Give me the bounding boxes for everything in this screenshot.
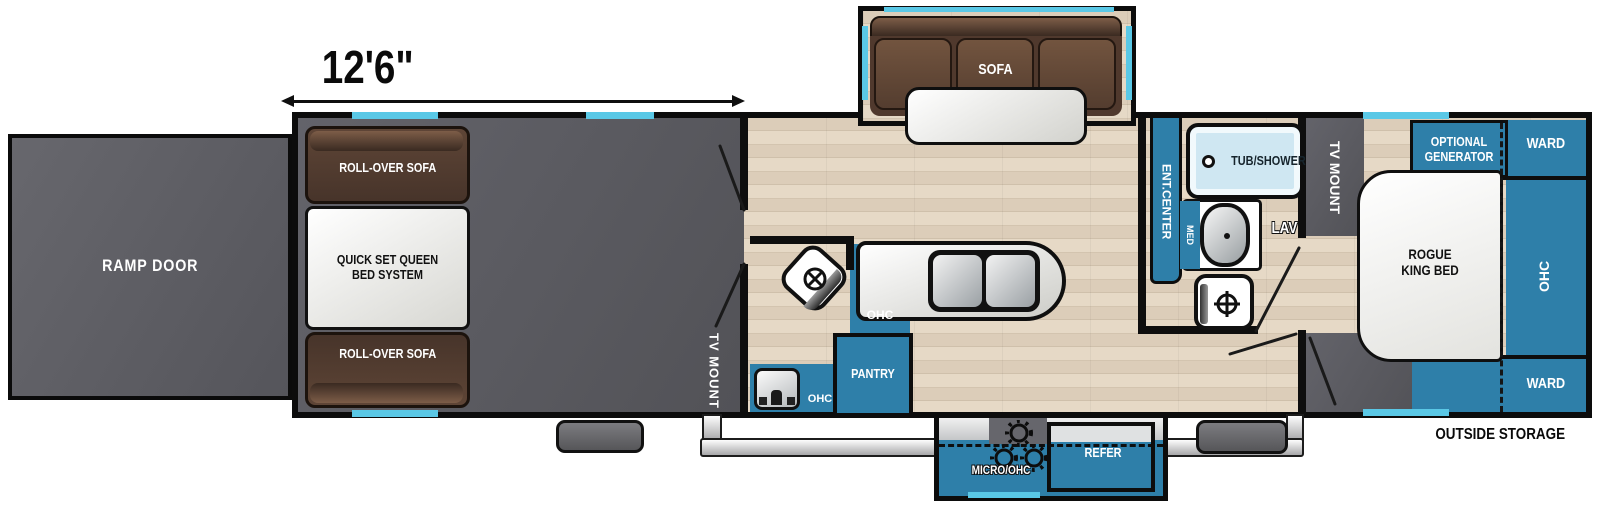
window xyxy=(352,112,438,119)
ent-center-label: ENT.CENTER xyxy=(1151,124,1181,280)
med-cabinet-label: MED xyxy=(1180,203,1200,267)
sink-detail xyxy=(787,397,795,405)
ward-rear-label: WARD xyxy=(1508,372,1584,396)
micro-ohc-label: MICRO/OHC xyxy=(946,460,1056,482)
bedroom-wall-left-lower xyxy=(1298,330,1306,414)
dimension-label: 12'6" xyxy=(283,44,453,92)
window xyxy=(352,410,438,417)
ward-rear-cabinet xyxy=(1412,359,1508,412)
garage-tv-mount-label: TV MOUNT xyxy=(698,330,728,412)
bedroom-ohc-label: OHC xyxy=(1530,238,1560,314)
king-bed-label: ROGUE KING BED xyxy=(1368,240,1492,286)
pantry-label: PANTRY xyxy=(833,360,913,388)
outside-storage-label: OUTSIDE STORAGE xyxy=(1412,422,1588,448)
tub-shower-label: TUB/SHOWER xyxy=(1222,131,1294,191)
slideout-window-left xyxy=(862,26,868,100)
queen-bed-label: QUICK SET QUEEN BED SYSTEM xyxy=(312,240,463,296)
slideout-window-right xyxy=(1126,26,1132,100)
bedroom-tv-mount-label: TV MOUNT xyxy=(1318,126,1350,230)
toilet-flush-icon xyxy=(800,264,830,294)
tub-drain-icon xyxy=(1202,155,1215,168)
toilet-tank xyxy=(1200,284,1208,324)
main-entry-step xyxy=(1196,420,1288,454)
slideout-window-top xyxy=(884,7,1114,12)
bath-toilet xyxy=(1194,274,1254,330)
ward-front-label: WARD xyxy=(1508,132,1584,156)
dimension-arrowhead-right xyxy=(732,95,745,107)
halfbath-toilet xyxy=(782,246,848,312)
sofa-label: SOFA xyxy=(956,58,1034,82)
ramp-door-label: RAMP DOOR xyxy=(8,252,292,280)
garage-entry-step xyxy=(556,420,644,453)
window xyxy=(1363,112,1449,119)
dimension-arrow-line xyxy=(289,100,737,103)
garage-wall-upper xyxy=(740,118,748,210)
sofa-table xyxy=(905,87,1087,145)
rv-floorplan: 12'6" RAMP DOOR ROLL-OVER SOFA QUICK SET… xyxy=(0,0,1600,522)
kitchen-ohc-label: OHC xyxy=(858,304,902,328)
window xyxy=(1363,409,1449,416)
sofa-back xyxy=(870,16,1122,38)
window xyxy=(586,112,654,119)
rollover-sofa-top-label: ROLL-OVER SOFA xyxy=(305,156,470,180)
sofa-roll xyxy=(310,383,463,403)
dimension-arrowhead-left xyxy=(281,95,294,107)
lav-label: LAV xyxy=(1258,216,1310,242)
sink-detail xyxy=(759,397,767,405)
lav-sink xyxy=(1200,203,1250,267)
halfbath-sink xyxy=(754,368,800,410)
refer-label: REFER xyxy=(1050,442,1156,464)
lav-drain xyxy=(1224,233,1230,239)
sofa-roll xyxy=(310,131,463,151)
bath-wall-left xyxy=(1138,118,1146,334)
toilet-flush-icon xyxy=(1212,289,1242,319)
halfbath-wall-top xyxy=(750,236,854,244)
garage-wall-lower xyxy=(740,264,748,412)
optional-generator-label: OPTIONAL GENERATOR xyxy=(1412,126,1506,174)
sink-faucet xyxy=(771,390,782,405)
halfbath-ohc-label: OHC xyxy=(798,388,842,410)
double-sink xyxy=(928,250,1040,312)
rollover-sofa-bottom-label: ROLL-OVER SOFA xyxy=(305,342,470,366)
sink-basin-right xyxy=(986,255,1035,307)
slideout-accent xyxy=(968,492,1040,498)
sink-basin-left xyxy=(933,255,982,307)
